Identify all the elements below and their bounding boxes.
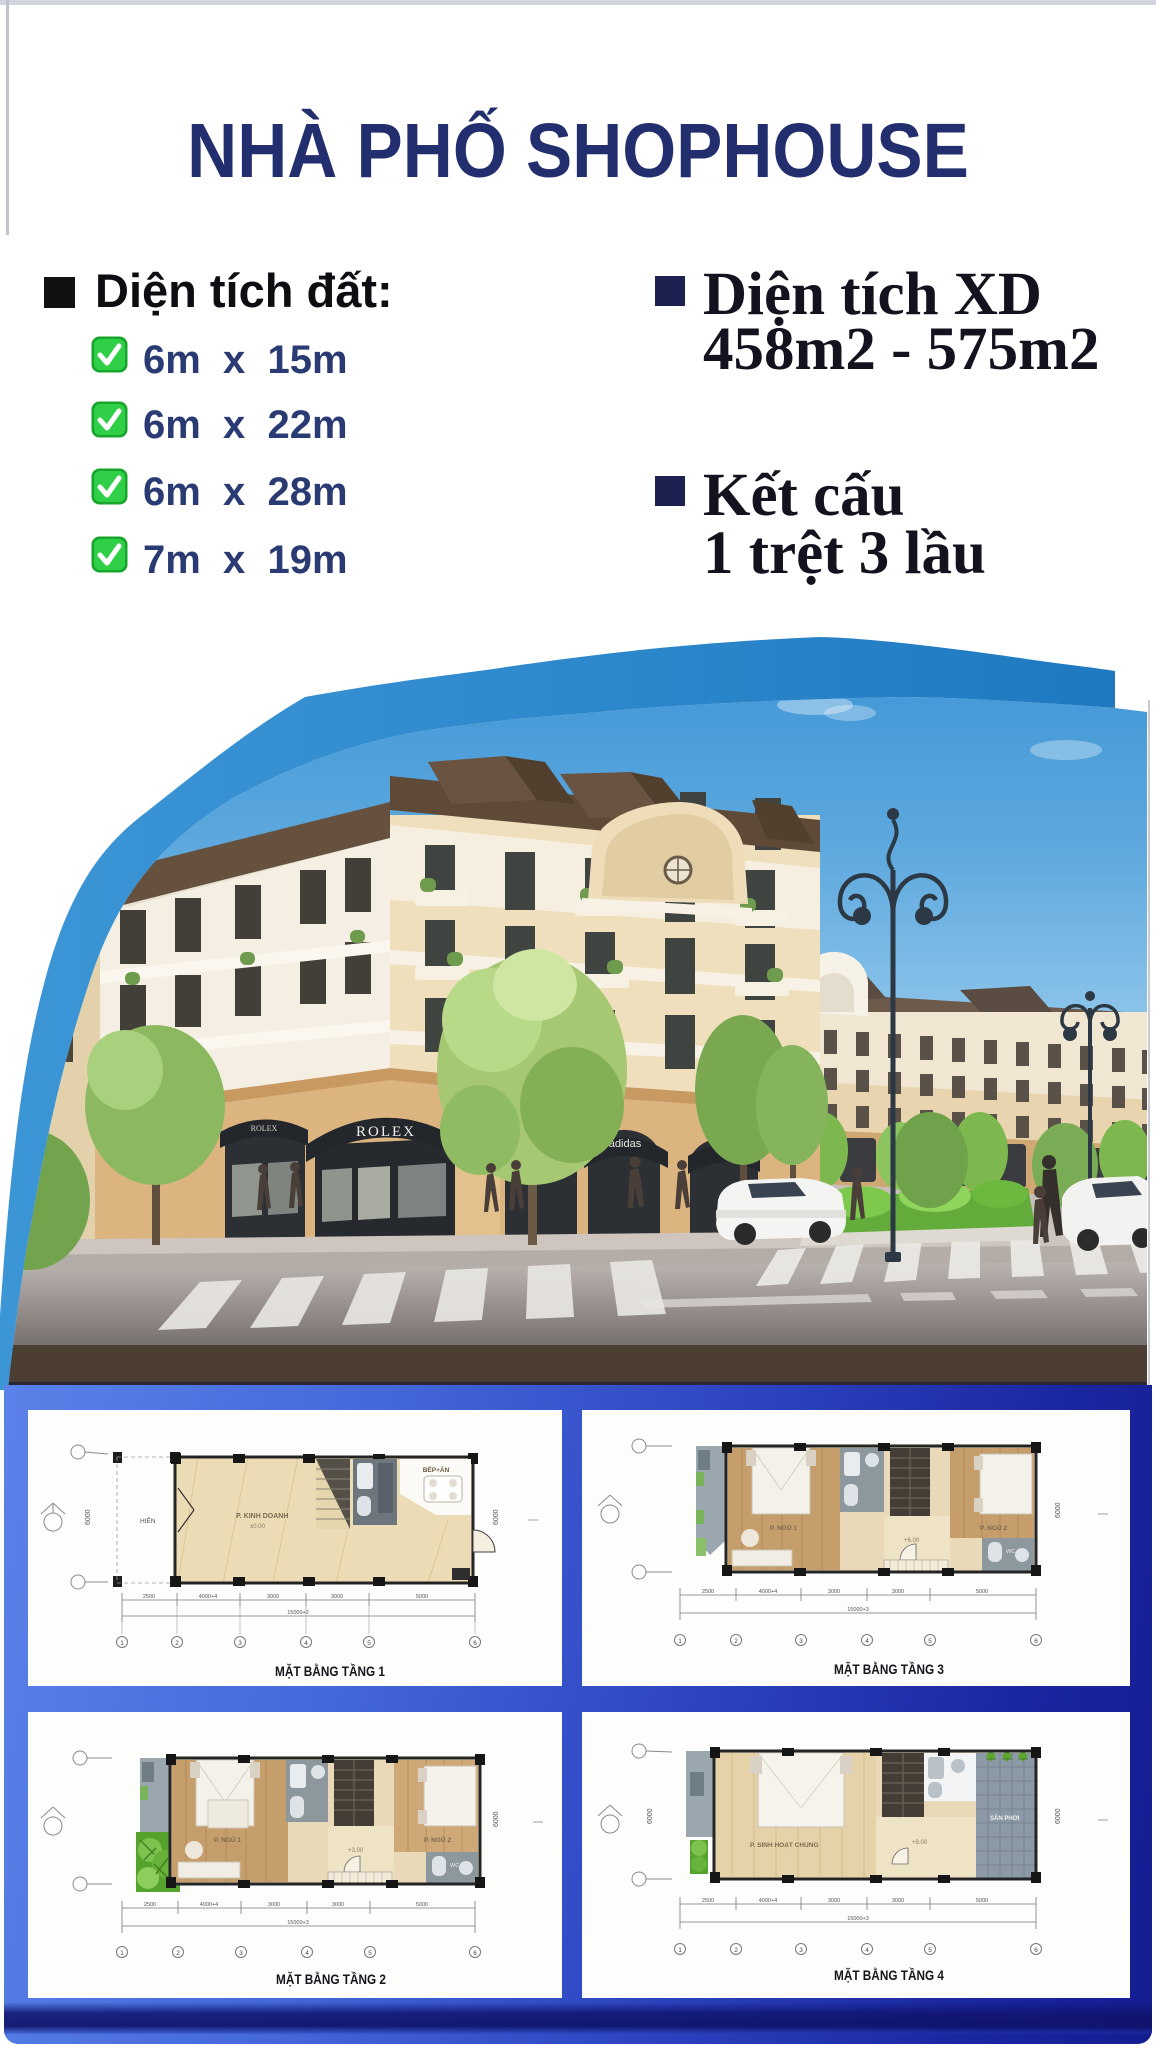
svg-text:4000+4: 4000+4 (200, 1902, 219, 1908)
svg-text:5000: 5000 (976, 1589, 988, 1595)
svg-text:MẶT BẰNG TẦNG 1: MẶT BẰNG TẦNG 1 (275, 1662, 385, 1679)
svg-text:3: 3 (239, 1950, 243, 1957)
svg-text:4: 4 (865, 1947, 869, 1954)
svg-text:WC: WC (450, 1863, 459, 1869)
svg-text:1: 1 (678, 1638, 682, 1645)
svg-text:2: 2 (176, 1950, 180, 1957)
svg-text:4: 4 (865, 1638, 869, 1645)
svg-text:1: 1 (120, 1950, 124, 1957)
svg-text:3000: 3000 (828, 1589, 840, 1595)
svg-text:4000+4: 4000+4 (759, 1589, 778, 1595)
svg-text:MẶT BẰNG TẦNG 4: MẶT BẰNG TẦNG 4 (834, 1966, 944, 1983)
svg-text:6000: 6000 (647, 1808, 654, 1824)
svg-text:15000+3: 15000+3 (847, 1607, 869, 1613)
svg-text:15000+3: 15000+3 (287, 1920, 309, 1926)
svg-text:P. NGỦ 1: P. NGỦ 1 (214, 1835, 241, 1844)
svg-text:4000+4: 4000+4 (759, 1898, 778, 1904)
svg-text:6000: 6000 (1055, 1502, 1062, 1518)
svg-text:5000: 5000 (416, 1594, 428, 1600)
svg-text:6000: 6000 (85, 1509, 92, 1525)
svg-text:4: 4 (305, 1950, 309, 1957)
svg-text:adidas: adidas (609, 1138, 642, 1150)
svg-text:6: 6 (473, 1950, 477, 1957)
svg-text:5: 5 (367, 1640, 371, 1647)
svg-text:2500: 2500 (144, 1902, 156, 1908)
svg-text:ROLEX: ROLEX (251, 1124, 278, 1133)
svg-text:15000+2: 15000+2 (287, 1610, 309, 1616)
svg-text:6: 6 (473, 1640, 477, 1647)
svg-text:MẶT BẰNG TẦNG 3: MẶT BẰNG TẦNG 3 (834, 1660, 944, 1677)
svg-text:MẶT BẰNG TẦNG 2: MẶT BẰNG TẦNG 2 (276, 1970, 386, 1987)
svg-text:3000: 3000 (332, 1902, 344, 1908)
svg-text:3000: 3000 (268, 1902, 280, 1908)
svg-text:15000+3: 15000+3 (847, 1916, 869, 1922)
svg-text:3: 3 (238, 1640, 242, 1647)
svg-text:+6.00: +6.00 (904, 1538, 920, 1544)
svg-text:3000: 3000 (267, 1594, 279, 1600)
svg-text:5000: 5000 (976, 1898, 988, 1904)
svg-text:6: 6 (1034, 1947, 1038, 1954)
svg-text:6000: 6000 (1055, 1808, 1062, 1824)
svg-text:6: 6 (1034, 1638, 1038, 1645)
svg-text:3000: 3000 (828, 1898, 840, 1904)
svg-text:P. NGỦ 2: P. NGỦ 2 (980, 1523, 1007, 1532)
svg-text:2500: 2500 (143, 1594, 155, 1600)
svg-text:6000: 6000 (493, 1509, 500, 1525)
svg-text:5: 5 (928, 1947, 932, 1954)
svg-text:5000: 5000 (416, 1902, 428, 1908)
svg-text:1: 1 (678, 1947, 682, 1954)
svg-text:3000: 3000 (892, 1898, 904, 1904)
svg-text:4000+4: 4000+4 (199, 1594, 218, 1600)
svg-text:5: 5 (928, 1638, 932, 1645)
svg-text:2500: 2500 (702, 1589, 714, 1595)
svg-text:3: 3 (799, 1947, 803, 1954)
svg-text:+3.00: +3.00 (348, 1848, 364, 1854)
svg-text:3: 3 (799, 1638, 803, 1645)
svg-text:P. SINH HOẠT CHUNG: P. SINH HOẠT CHUNG (750, 1842, 819, 1849)
svg-text:WC: WC (1006, 1549, 1015, 1555)
svg-text:ROLEX: ROLEX (356, 1124, 416, 1140)
svg-text:2500: 2500 (702, 1898, 714, 1904)
svg-text:5: 5 (368, 1950, 372, 1957)
svg-text:P. NGỦ 1: P. NGỦ 1 (770, 1523, 797, 1532)
svg-text:P. KINH DOANH: P. KINH DOANH (236, 1513, 288, 1520)
svg-text:P. NGỦ 2: P. NGỦ 2 (424, 1835, 451, 1844)
svg-text:+9.00: +9.00 (912, 1840, 928, 1846)
svg-text:±0.00: ±0.00 (250, 1524, 266, 1530)
svg-text:4: 4 (304, 1640, 308, 1647)
svg-text:2: 2 (734, 1947, 738, 1954)
svg-text:SÂN PHƠI: SÂN PHƠI (990, 1815, 1020, 1822)
svg-text:3000: 3000 (331, 1594, 343, 1600)
svg-text:3000: 3000 (892, 1589, 904, 1595)
svg-text:HIÊN: HIÊN (140, 1516, 156, 1525)
svg-text:2: 2 (734, 1638, 738, 1645)
svg-text:1: 1 (120, 1640, 124, 1647)
svg-text:2: 2 (175, 1640, 179, 1647)
svg-text:6000: 6000 (493, 1811, 500, 1827)
